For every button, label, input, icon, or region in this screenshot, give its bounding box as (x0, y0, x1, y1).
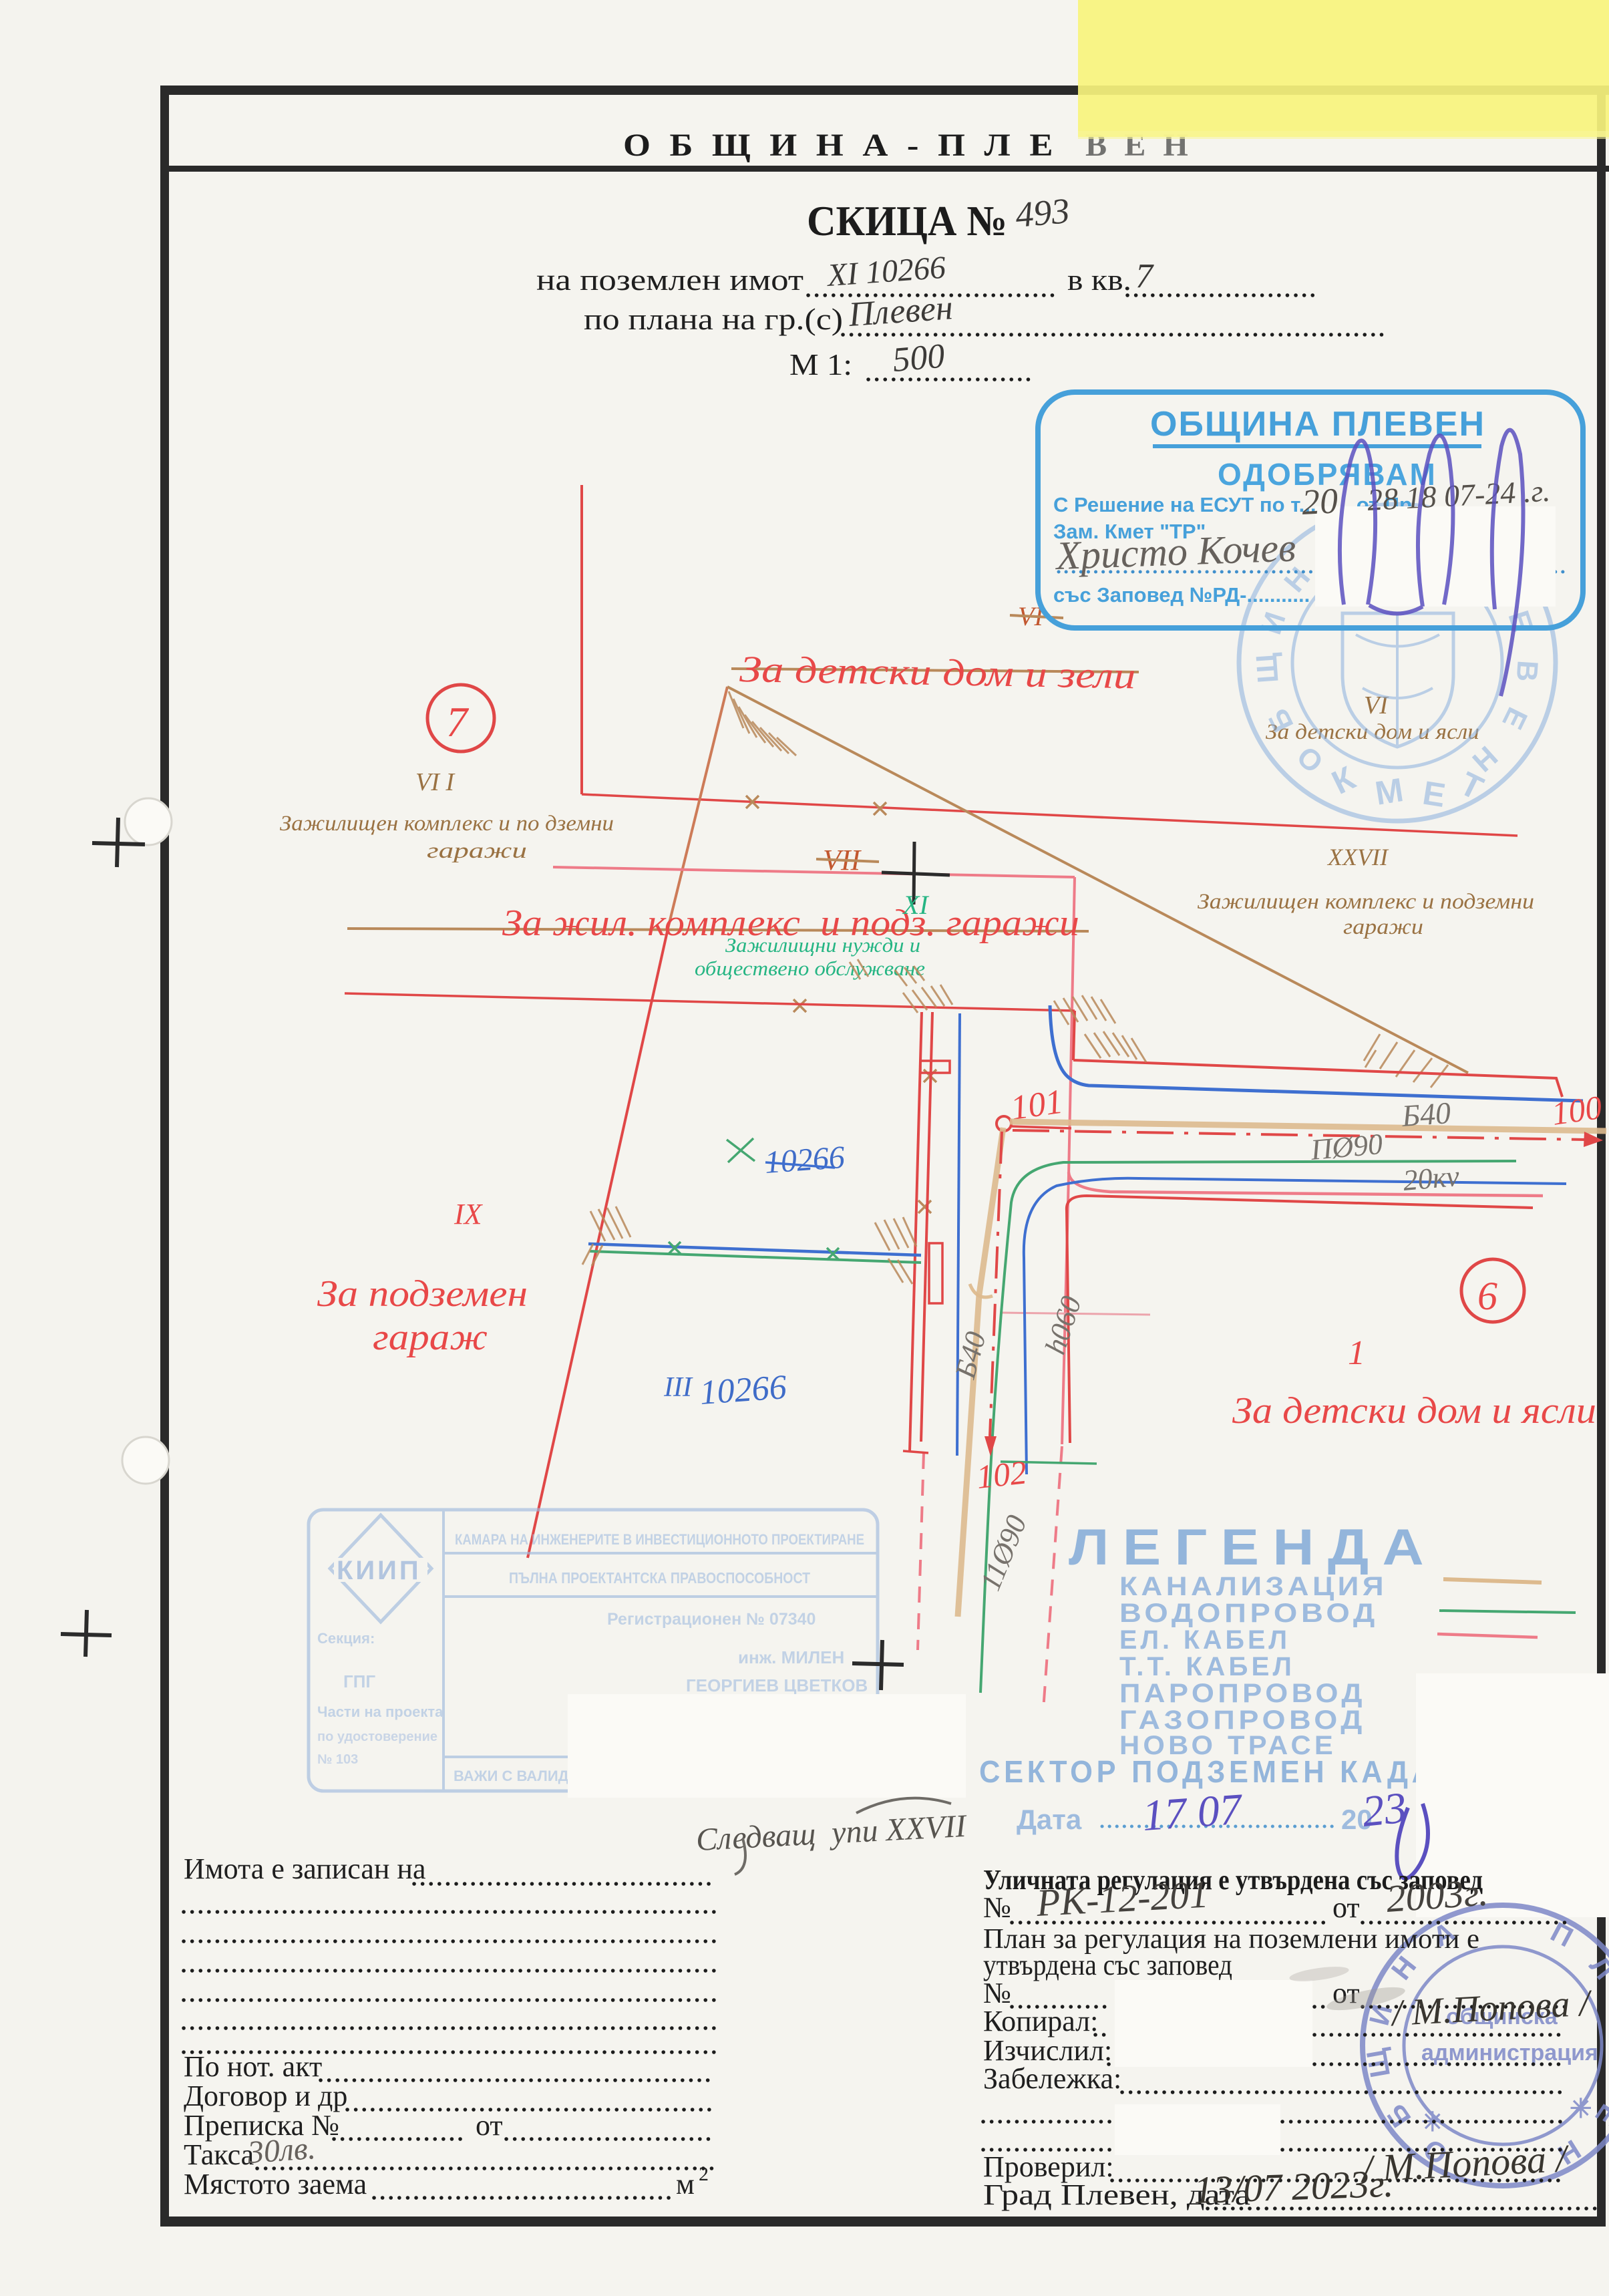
svg-text:Имота е записан на: Имота е записан на (184, 1852, 426, 1885)
svg-text:утвърдена със заповед: утвърдена със заповед (983, 1949, 1232, 1981)
svg-text:ГПГ: ГПГ (343, 1671, 375, 1691)
svg-text:администрация: администрация (1421, 2040, 1598, 2066)
svg-text:Зажилищен комплекс и по дземни: Зажилищен комплекс и по дземни (280, 812, 614, 836)
svg-text:ПАРОПРОВОД: ПАРОПРОВОД (1119, 1679, 1366, 1708)
svg-text:Б40: Б40 (1400, 1096, 1452, 1133)
svg-text:100: 100 (1550, 1088, 1604, 1132)
svg-text:Договор и др: Договор и др (184, 2080, 347, 2112)
svg-text:по плана на гр.(с): по плана на гр.(с) (584, 302, 843, 336)
svg-text:По нот. акт: По нот. акт (184, 2050, 322, 2083)
svg-text:Щ: Щ (1250, 652, 1285, 684)
svg-text:Забележка:: Забележка: (983, 2062, 1121, 2095)
svg-text:20кv: 20кv (1402, 1160, 1461, 1197)
svg-text:ГЕОРГИЕВ ЦВЕТКОВ: ГЕОРГИЕВ ЦВЕТКОВ (686, 1675, 868, 1695)
svg-text:102: 102 (974, 1453, 1028, 1496)
svg-text:КАМАРА НА ИНЖЕНЕРИТЕ В ИНВЕСТИ: КАМАРА НА ИНЖЕНЕРИТЕ В ИНВЕСТИЦИОННОТО П… (455, 1531, 864, 1548)
svg-text:на поземлен имот: на поземлен имот (536, 263, 803, 297)
svg-text:493: 493 (1014, 190, 1071, 235)
svg-text:Мястото заема: Мястото заема (184, 2168, 374, 2200)
svg-text:XXVII: XXVII (1326, 844, 1389, 870)
svg-text:2003г.: 2003г. (1385, 1870, 1489, 1920)
svg-text:ВОДОПРОВОД: ВОДОПРОВОД (1119, 1599, 1379, 1628)
svg-text:500: 500 (891, 337, 946, 379)
svg-text:За детски дом и зели: За детски дом и зели (739, 649, 1136, 697)
svg-text:по удостоверение: по удостоверение (317, 1730, 437, 1744)
svg-text:обществено обслужване: обществено обслужване (695, 957, 925, 980)
svg-text:гаражи: гаражи (1343, 915, 1423, 939)
svg-text:М: М (1373, 771, 1406, 812)
svg-text:в кв.: в кв. (1067, 263, 1131, 297)
svg-text:Части на проекта: Части на проекта (317, 1703, 443, 1720)
svg-text:гараж: гараж (373, 1317, 488, 1358)
svg-text:Дата: Дата (1017, 1804, 1082, 1835)
svg-text:ЕЛ. КАБЕЛ: ЕЛ. КАБЕЛ (1119, 1625, 1290, 1655)
svg-text:от: от (1332, 1891, 1360, 1924)
svg-text:В: В (1510, 659, 1544, 683)
svg-text:ОБЩИНА-ПЛЕ: ОБЩИНА-ПЛЕ (623, 128, 1072, 163)
svg-text:13/07 2023г.: 13/07 2023г. (1193, 2162, 1394, 2212)
svg-text:IX: IX (454, 1198, 484, 1231)
svg-text:7: 7 (1135, 257, 1154, 295)
svg-text:Такса: Такса (184, 2138, 254, 2171)
svg-text:Зажилищни нужди и: Зажилищни нужди и (725, 933, 920, 957)
svg-text:За детски дом и ясли: За детски дом и ясли (1232, 1390, 1596, 1432)
svg-text:✳: ✳ (1570, 2094, 1592, 2124)
svg-text:РК-12-201: РК-12-201 (1035, 1872, 1210, 1925)
svg-text:17 07: 17 07 (1141, 1785, 1245, 1840)
svg-text:ПЪЛНА ПРОЕКТАНТСКА ПРАВОСПОСОБ: ПЪЛНА ПРОЕКТАНТСКА ПРАВОСПОСОБНОСТ (509, 1569, 810, 1587)
svg-text:Секция:: Секция: (317, 1630, 375, 1647)
svg-text:III: III (663, 1372, 693, 1403)
svg-text:Христо Кочев: Христо Кочев (1054, 526, 1296, 579)
svg-text:1: 1 (1348, 1334, 1365, 1372)
svg-text:гаражи: гаражи (427, 839, 527, 863)
svg-text:ЛЕГЕНДА: ЛЕГЕНДА (1069, 1519, 1437, 1576)
svg-text:20: 20 (1300, 480, 1338, 522)
svg-text:10266: 10266 (763, 1140, 846, 1180)
svg-text:№ 103: № 103 (317, 1752, 358, 1767)
svg-text:Т.Т. КАБЕЛ: Т.Т. КАБЕЛ (1119, 1652, 1295, 1681)
svg-text:ПØ90: ПØ90 (1309, 1128, 1384, 1166)
svg-text:2: 2 (699, 2163, 709, 2185)
svg-text:от: от (476, 2109, 503, 2142)
svg-text:№: № (983, 1891, 1011, 1924)
svg-text:инж. МИЛЕН: инж. МИЛЕН (738, 1647, 844, 1667)
svg-text:СКИЦА №: СКИЦА № (807, 197, 1007, 244)
svg-text:Регистрационен № 07340: Регистрационен № 07340 (607, 1610, 816, 1629)
svg-text:XI: XI (902, 890, 929, 920)
svg-text:със Заповед №РД-...........: със Заповед №РД-........... (1053, 583, 1310, 607)
svg-text:КИИП: КИИП (337, 1556, 421, 1585)
svg-text:М 1:: М 1: (789, 347, 852, 381)
svg-text:7: 7 (446, 698, 470, 746)
svg-text:За подземен: За подземен (317, 1273, 528, 1315)
svg-text:Копирал:: Копирал: (983, 2005, 1098, 2037)
svg-text:Зажилищен комплекс и подземни: Зажилищен комплекс и подземни (1198, 890, 1534, 914)
svg-text:КАНАЛИЗАЦИЯ: КАНАЛИЗАЦИЯ (1119, 1572, 1387, 1601)
svg-text:10266: 10266 (699, 1368, 788, 1412)
svg-text:м: м (676, 2168, 695, 2200)
svg-text:Плевен: Плевен (847, 289, 954, 334)
svg-text:6: 6 (1477, 1274, 1497, 1318)
svg-text:30лв.: 30лв. (246, 2130, 317, 2170)
svg-text:VI I: VI I (415, 768, 456, 796)
